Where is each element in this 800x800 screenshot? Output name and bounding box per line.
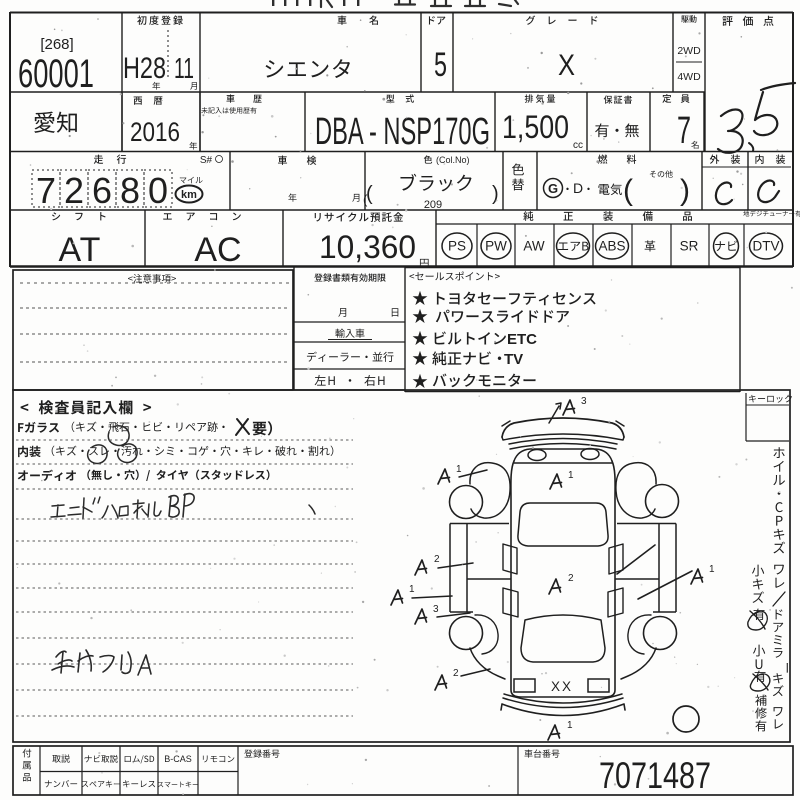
- svg-text:10,360: 10,360: [319, 229, 416, 265]
- svg-text:(: (: [623, 174, 633, 207]
- svg-text:1,500: 1,500: [502, 109, 569, 145]
- svg-text:6: 6: [92, 170, 112, 211]
- svg-text:ABS: ABS: [598, 239, 625, 254]
- svg-text:11: 11: [174, 53, 194, 85]
- svg-text:2016: 2016: [130, 117, 180, 147]
- svg-text:2: 2: [64, 170, 84, 211]
- svg-text:7: 7: [677, 110, 691, 152]
- svg-text:3: 3: [581, 396, 587, 407]
- svg-text:D: D: [573, 180, 583, 196]
- svg-text:DTV: DTV: [753, 239, 780, 254]
- svg-text:2: 2: [453, 668, 459, 679]
- svg-text:[268]: [268]: [40, 36, 73, 53]
- svg-text:209: 209: [424, 199, 442, 211]
- svg-text:8: 8: [120, 170, 140, 211]
- svg-text:AT: AT: [59, 231, 102, 269]
- svg-text:3: 3: [433, 604, 439, 615]
- svg-text:AC: AC: [194, 231, 241, 269]
- svg-text:AW: AW: [523, 239, 545, 254]
- svg-text:0: 0: [148, 170, 168, 211]
- svg-text:XX: XX: [551, 679, 573, 694]
- svg-text:S#: S#: [200, 155, 213, 166]
- svg-text:2: 2: [568, 573, 574, 584]
- svg-text:7071487: 7071487: [599, 755, 711, 796]
- svg-text:1: 1: [709, 564, 715, 575]
- svg-text:1: 1: [567, 720, 573, 731]
- svg-text:km: km: [181, 189, 197, 201]
- svg-text:ETC: ETC: [507, 331, 537, 348]
- svg-text:DBA - NSP170G: DBA - NSP170G: [315, 111, 490, 153]
- svg-text:PW: PW: [485, 239, 507, 254]
- svg-text:4WD: 4WD: [677, 71, 701, 83]
- svg-text:X: X: [558, 49, 575, 82]
- svg-text:60001: 60001: [18, 52, 94, 96]
- svg-text:(Col.No): (Col.No): [436, 155, 470, 165]
- svg-text:): ): [680, 174, 690, 207]
- svg-text:TV: TV: [504, 351, 523, 368]
- svg-text:): ): [492, 183, 499, 205]
- svg-text:SR: SR: [680, 239, 699, 254]
- svg-text:G: G: [548, 181, 558, 196]
- svg-text:(: (: [366, 183, 373, 205]
- svg-text:1: 1: [456, 464, 462, 475]
- svg-text:1: 1: [568, 470, 574, 481]
- svg-text:H28: H28: [123, 52, 166, 85]
- svg-text:PS: PS: [448, 239, 466, 254]
- svg-text:2WD: 2WD: [677, 45, 701, 57]
- svg-text:B-CAS: B-CAS: [164, 754, 192, 764]
- svg-text:1: 1: [409, 584, 415, 595]
- svg-text:5: 5: [434, 46, 447, 84]
- svg-text:cc: cc: [573, 140, 583, 151]
- svg-text:2: 2: [434, 554, 440, 565]
- svg-text:7: 7: [36, 170, 56, 211]
